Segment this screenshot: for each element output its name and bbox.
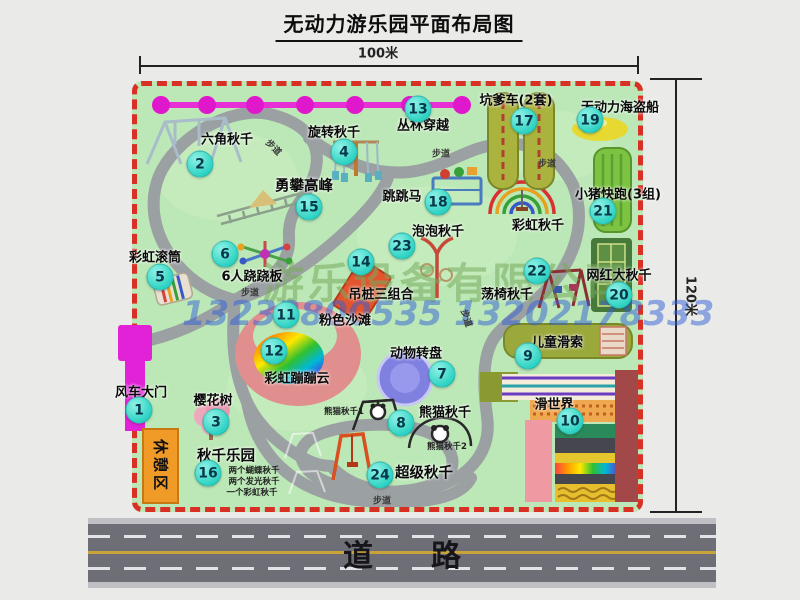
marker-6-seesaw: 6 [212, 241, 239, 268]
label-hexagon-swing: 六角秋千 [201, 129, 253, 148]
rest-area: 休憩区 [142, 428, 179, 504]
label-rainbow-roller: 彩虹滚筒 [129, 247, 181, 266]
marker-11-pink-beach: 11 [273, 302, 300, 329]
label-jumping-horse: 跳跳马 [382, 186, 421, 205]
marker-7-animal-carousel: 7 [429, 361, 456, 388]
label-rainbow-swing: 彩虹秋千 [512, 215, 564, 234]
watermark-phone: 13233800535 13202178333 [182, 294, 714, 334]
slide-world-icon [480, 370, 638, 502]
page-title: 无动力游乐园平面布局图 [276, 8, 523, 42]
marker-16-swing-park: 16 [195, 460, 222, 487]
marker-2-hexagon-swing: 2 [187, 151, 214, 178]
marker-18-jumping-horse: 18 [425, 189, 452, 216]
marker-20-big-swing: 20 [606, 282, 633, 309]
label-super-swing: 超级秋千 [395, 462, 453, 483]
marker-21-piggy-run: 21 [590, 198, 617, 225]
windmill-gate-icon [118, 325, 152, 361]
label-swing-chair: 荡椅秋千 [481, 284, 533, 303]
road-asphalt: 道路 [88, 524, 716, 582]
rest-area-label: 休憩区 [150, 439, 171, 493]
label-rotating-swing: 旋转秋千 [308, 122, 360, 141]
label-panda-swing-1: 熊猫秋千1 [324, 405, 364, 417]
dimension-width-tick-left [139, 56, 141, 74]
label-walkway-4: 步道 [241, 286, 259, 299]
label-panda-swing-2: 熊猫秋千2 [427, 440, 467, 452]
marker-22-swing-chair: 22 [524, 258, 551, 285]
marker-15-climb-peak: 15 [296, 194, 323, 221]
marker-3-cherry-tree: 3 [203, 409, 230, 436]
marker-23-bubble-swing: 23 [389, 233, 416, 260]
marker-14-hanging-piles: 14 [348, 249, 375, 276]
road-curb-bottom [88, 582, 716, 588]
dimension-width-label: 100米 [358, 43, 398, 62]
marker-5-rainbow-roller: 5 [147, 264, 174, 291]
label-climb-peak: 勇攀高峰 [275, 175, 333, 196]
marker-19-pirate-ship: 19 [577, 107, 604, 134]
dimension-height-tick-top [650, 78, 702, 80]
label-piggy-run: 小猪快跑(3组) [575, 184, 661, 203]
marker-17-kengdie-car: 17 [511, 108, 538, 135]
marker-4-rotating-swing: 4 [331, 139, 358, 166]
label-seesaw: 6人跷跷板 [221, 266, 282, 285]
label-walkway-3: 步道 [538, 157, 556, 170]
label-bubble-swing: 泡泡秋千 [412, 221, 464, 240]
playground-plan-screenshot: 无动力游乐园平面布局图 100米 120米 [0, 0, 800, 600]
dimension-width-tick-right [637, 56, 639, 74]
marker-1-windmill-gate: 1 [126, 397, 153, 424]
label-pink-beach: 粉色沙滩 [319, 310, 371, 329]
label-walkway-2: 步道 [432, 147, 450, 160]
road-label: 道路 [343, 531, 519, 575]
marker-8-panda-swing: 8 [388, 410, 415, 437]
marker-12-rainbow-cloud: 12 [261, 338, 288, 365]
marker-9-kids-zipline: 9 [515, 343, 542, 370]
marker-24-super-swing: 24 [367, 462, 394, 489]
label-swing-park-note-3: 一个彩虹秋千 [226, 486, 277, 498]
road: 道路 [88, 518, 716, 588]
label-rainbow-cloud: 彩虹蹦蹦云 [264, 368, 329, 387]
dimension-height-tick-bottom [650, 511, 702, 513]
label-animal-carousel: 动物转盘 [390, 343, 442, 362]
marker-10-slide-world: 10 [557, 408, 584, 435]
marker-13-jungle-crossing: 13 [405, 96, 432, 123]
label-walkway-6: 步道 [373, 494, 391, 507]
label-cherry-tree: 樱花树 [193, 390, 232, 409]
label-hanging-piles: 吊桩三组合 [348, 284, 413, 303]
label-kengdie-car: 坑爹车(2套) [480, 90, 553, 109]
dimension-width-line [140, 65, 638, 67]
label-panda-swing: 熊猫秋千 [419, 402, 471, 421]
